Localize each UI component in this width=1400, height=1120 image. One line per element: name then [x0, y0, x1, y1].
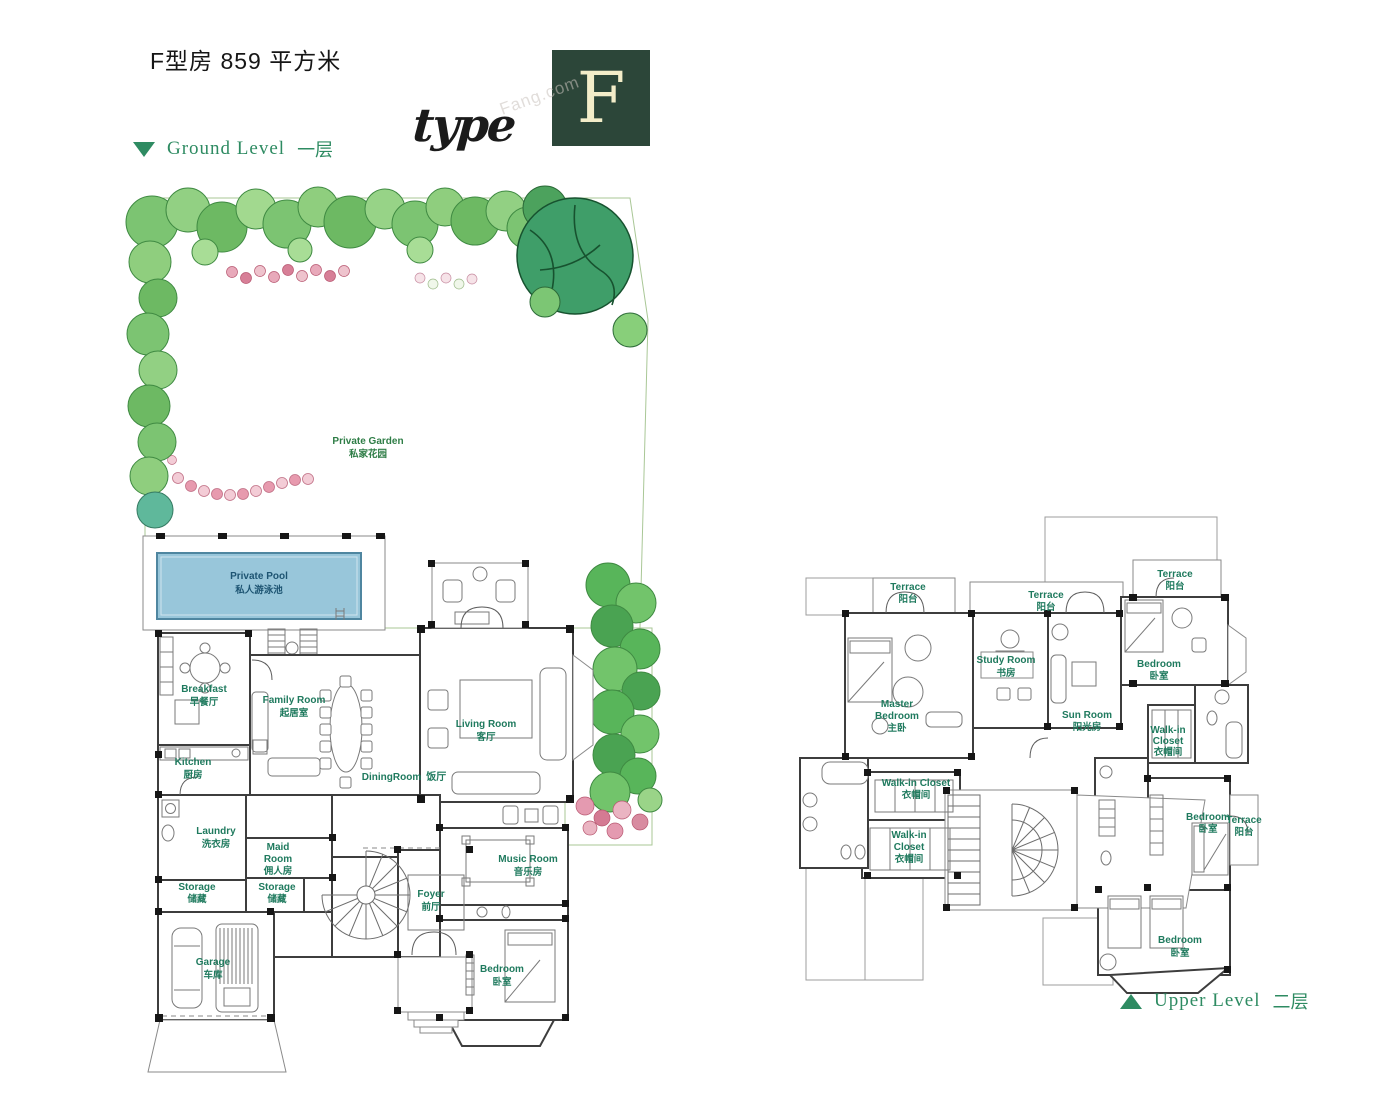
svg-text:阳光房: 阳光房 [1073, 721, 1102, 733]
large-tree-icon [517, 186, 647, 347]
svg-text:私家花园: 私家花园 [348, 448, 387, 460]
entry-porch [398, 957, 472, 1012]
room-kitchen [158, 745, 250, 795]
label-bedroom-top-right: Bedroom [1137, 659, 1181, 670]
label-sun-room: Sun Room [1062, 710, 1112, 721]
svg-text:车库: 车库 [203, 969, 223, 981]
upper-level-label: Upper Level [1154, 990, 1260, 1012]
svg-text:Bedroom: Bedroom [875, 711, 919, 722]
svg-text:卧室: 卧室 [1149, 670, 1169, 682]
svg-text:储藏: 储藏 [187, 893, 207, 905]
svg-text:音乐房: 音乐房 [514, 866, 543, 878]
label-walkin-center-lower: Walk-in [891, 830, 926, 841]
label-terrace-top-left: Terrace [890, 582, 926, 593]
label-living-room: Living Room [456, 719, 517, 730]
svg-text:前厅: 前厅 [421, 901, 441, 913]
label-maid-room: Maid [267, 842, 290, 853]
label-dining-room: DiningRoom饭厅 [362, 770, 446, 783]
driveway [148, 1020, 286, 1072]
stair-hall [332, 857, 398, 957]
label-kitchen: Kitchen [175, 757, 212, 768]
svg-text:客厅: 客厅 [475, 731, 496, 743]
label-laundry: Laundry [196, 826, 236, 837]
svg-text:衣帽间: 衣帽间 [895, 853, 924, 865]
ground-level-label-zh: 一层 [297, 136, 333, 162]
label-private-pool: Private Pool [230, 571, 288, 582]
room-laundry [158, 795, 246, 880]
bedroom-bay-window [448, 1020, 554, 1046]
svg-text:卧室: 卧室 [1170, 947, 1190, 959]
svg-text:私人游泳池: 私人游泳池 [234, 584, 283, 596]
svg-text:书房: 书房 [996, 667, 1015, 679]
label-terrace-top-center: Terrace [1028, 590, 1064, 601]
svg-text:阳台: 阳台 [1036, 601, 1056, 613]
label-foyer: Foyer [417, 889, 444, 900]
tree-icons-left [127, 241, 177, 528]
svg-text:卧室: 卧室 [1198, 823, 1218, 835]
living-bay-window [573, 655, 593, 760]
flower-garland-icons [158, 426, 314, 501]
label-master-bedroom: Master [881, 699, 913, 710]
type-f-letter: F [577, 63, 626, 133]
label-music-room: Music Room [498, 854, 558, 865]
svg-text:Closet: Closet [1153, 736, 1184, 747]
svg-text:早餐厅: 早餐厅 [190, 696, 219, 708]
upper-level-label-zh: 二层 [1272, 988, 1308, 1014]
svg-text:阳台: 阳台 [898, 593, 918, 605]
up-triangle-icon [1120, 994, 1142, 1009]
label-study-room: Study Room [977, 655, 1036, 666]
svg-text:起居室: 起居室 [279, 707, 309, 719]
label-private-garden: Private Garden [332, 436, 403, 447]
label-bedroom-ground: Bedroom [480, 964, 524, 975]
svg-text:阳台: 阳台 [1165, 580, 1185, 592]
type-f-logo: F [552, 50, 650, 146]
svg-text:Room: Room [264, 854, 292, 865]
svg-text:衣帽间: 衣帽间 [902, 789, 931, 801]
label-bedroom-mid-right: Bedroom [1186, 812, 1230, 823]
tree-icons-top [126, 187, 549, 265]
upper-level-legend: Upper Level 二层 [1120, 988, 1308, 1014]
svg-text:佣人房: 佣人房 [263, 865, 293, 877]
label-terrace-top-right: Terrace [1157, 569, 1193, 580]
svg-text:卧室: 卧室 [492, 976, 512, 988]
flower-border-icons [227, 265, 478, 290]
svg-text:厨房: 厨房 [183, 769, 202, 781]
label-garage: Garage [196, 957, 231, 968]
label-family-room: Family Room [263, 695, 326, 706]
svg-text:储藏: 储藏 [267, 893, 287, 905]
svg-text:洗衣房: 洗衣房 [202, 838, 231, 850]
label-walkin-center-upper: Walk-in Closet [882, 778, 951, 789]
svg-text:衣帽间: 衣帽间 [1154, 746, 1183, 758]
label-bedroom-bottom: Bedroom [1158, 935, 1202, 946]
svg-text:阳台: 阳台 [1234, 826, 1254, 838]
svg-text:Closet: Closet [894, 842, 925, 853]
label-breakfast: Breakfast [181, 684, 227, 695]
label-storage-center: Storage [258, 882, 296, 893]
label-terrace-mid-right: Terrace [1226, 815, 1262, 826]
svg-text:主卧: 主卧 [887, 722, 907, 734]
bay-window-top-right [1228, 625, 1246, 685]
page-title: F型房 859 平方米 [150, 42, 341, 76]
floor-plan-canvas: Private Garden 私家花园 Private Pool 私人游泳池 B… [0, 0, 1400, 1120]
label-walkin-right: Walk-in [1150, 725, 1185, 736]
ground-level-legend: Ground Level 一层 [133, 136, 333, 162]
ground-level-label: Ground Level [167, 138, 285, 160]
down-triangle-icon [133, 142, 155, 157]
label-storage-left: Storage [178, 882, 216, 893]
